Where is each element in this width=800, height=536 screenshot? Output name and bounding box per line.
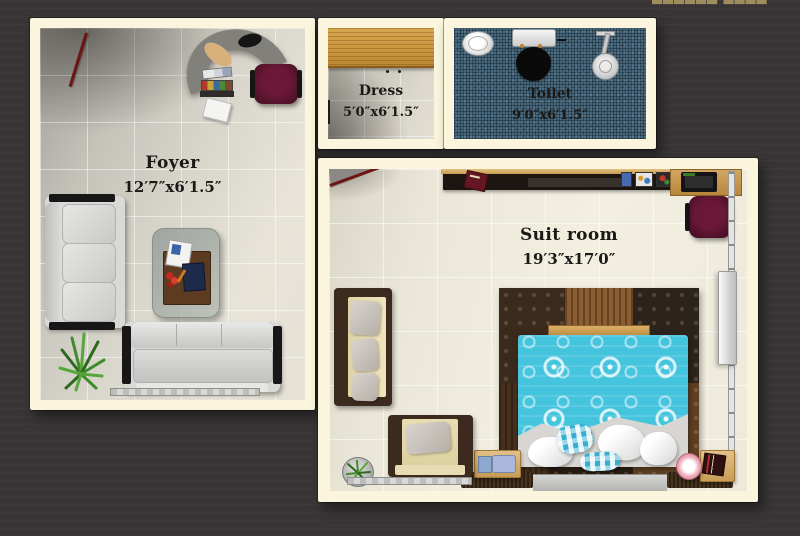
wardrobe-handle (398, 70, 401, 73)
red-magazine (463, 170, 488, 192)
sofa-armrest (49, 194, 115, 202)
laptop (681, 172, 717, 192)
room-suit: Suit room 19′3″x17′0″ (318, 158, 758, 502)
small-box (478, 456, 492, 473)
chair-armrest (250, 70, 255, 98)
toilet-name: Toilet (454, 84, 646, 106)
sofa-armrest (49, 322, 115, 330)
room-toilet: Toilet 9′0″x6′1.5″ (444, 18, 656, 149)
room-foyer: Foyer 12′7″x6′1.5″ (30, 18, 315, 410)
suit-dimensions: 19′3″x17′0″ (459, 248, 679, 271)
foyer-sofa-horizontal (124, 322, 280, 392)
nightstand-left (474, 450, 521, 478)
suit-sofa-vertical (334, 288, 392, 406)
toilet-dimensions: 9′0″x6′1.5″ (454, 106, 646, 126)
toilet-hinge (520, 44, 524, 48)
dress-name: Dress (328, 81, 434, 103)
cushion-divider (176, 324, 177, 346)
chair-armrest (297, 70, 302, 98)
sofa-pillow (351, 338, 379, 372)
clipped-watermark-text: ▆▆▆▆▆▆ ▆▆▆▆ ▆▆▆ (652, 0, 800, 5)
books-row (201, 80, 233, 91)
deco-frame (635, 172, 653, 187)
console-recess (528, 178, 623, 187)
sofa-back (131, 322, 273, 348)
desk-shelf (200, 91, 234, 97)
watermark-glyphs: ▆▆▆▆▆▆ ▆▆▆▆ ▆▆▆ (652, 0, 800, 5)
foyer-bottom-sill (110, 388, 260, 396)
wardrobe (328, 28, 434, 68)
toilet-floor: Toilet 9′0″x6′1.5″ (454, 28, 646, 139)
foyer-sofa-vertical (45, 196, 125, 328)
suit-office-chair (689, 196, 731, 238)
foyer-plant (56, 330, 106, 394)
suit-name: Suit room (459, 222, 679, 248)
suit-label: Suit room 19′3″x17′0″ (459, 222, 679, 272)
flowers (166, 271, 178, 287)
suit-armchair (388, 415, 473, 477)
sofa-armrest (122, 326, 131, 384)
foyer-coffee-table (152, 228, 220, 318)
sofa-pillow (349, 300, 381, 336)
pink-lamp (676, 453, 702, 480)
foyer-name: Foyer (40, 150, 305, 176)
sink (462, 31, 494, 56)
toilet-label: Toilet 9′0″x6′1.5″ (454, 84, 646, 126)
foyer-label: Foyer 12′7″x6′1.5″ (40, 150, 305, 200)
foyer-door-leaf (69, 33, 88, 87)
chair-armrest (685, 203, 690, 231)
media-console (443, 169, 675, 190)
foyer-office-chair (254, 64, 298, 104)
book (182, 262, 206, 291)
sofa-pillow (352, 373, 379, 402)
sofa-cushion (62, 282, 116, 322)
dress-floor: Dress 5′0″x6′1.5″ (328, 28, 434, 139)
floor-plan-canvas: ▆▆▆▆▆▆ ▆▆▆▆ ▆▆▆ Foyer 12′7″x6′1.5″ (0, 0, 800, 536)
toilet-flush-handle (557, 39, 566, 41)
shower-head (592, 53, 619, 80)
sofa-cushion (62, 204, 116, 244)
bedside-book (702, 453, 727, 477)
armchair-pillow (405, 421, 451, 455)
sofa-back (45, 202, 63, 322)
armchair-front (395, 465, 465, 475)
sofa-seat (133, 349, 273, 383)
sofa-armrest (273, 326, 282, 384)
foyer-floor: Foyer 12′7″x6′1.5″ (40, 28, 305, 400)
room-dress: Dress 5′0″x6′1.5″ (318, 18, 444, 149)
dress-dimensions: 5′0″x6′1.5″ (328, 103, 434, 123)
sofa-cushion (62, 243, 116, 283)
cushion-divider (221, 324, 222, 346)
suit-floor: Suit room 19′3″x17′0″ (329, 169, 747, 491)
right-wall-window (718, 271, 737, 365)
checkered-pillow (580, 451, 621, 472)
toilet-tank (512, 29, 556, 47)
deco-book (621, 172, 632, 187)
suit-bottom-sill (347, 477, 472, 485)
phone (492, 455, 516, 473)
bed-footboard (533, 474, 667, 491)
bed (518, 325, 688, 475)
wardrobe-handle (386, 70, 389, 73)
dress-label: Dress 5′0″x6′1.5″ (328, 81, 434, 123)
toilet-seat (516, 47, 551, 81)
